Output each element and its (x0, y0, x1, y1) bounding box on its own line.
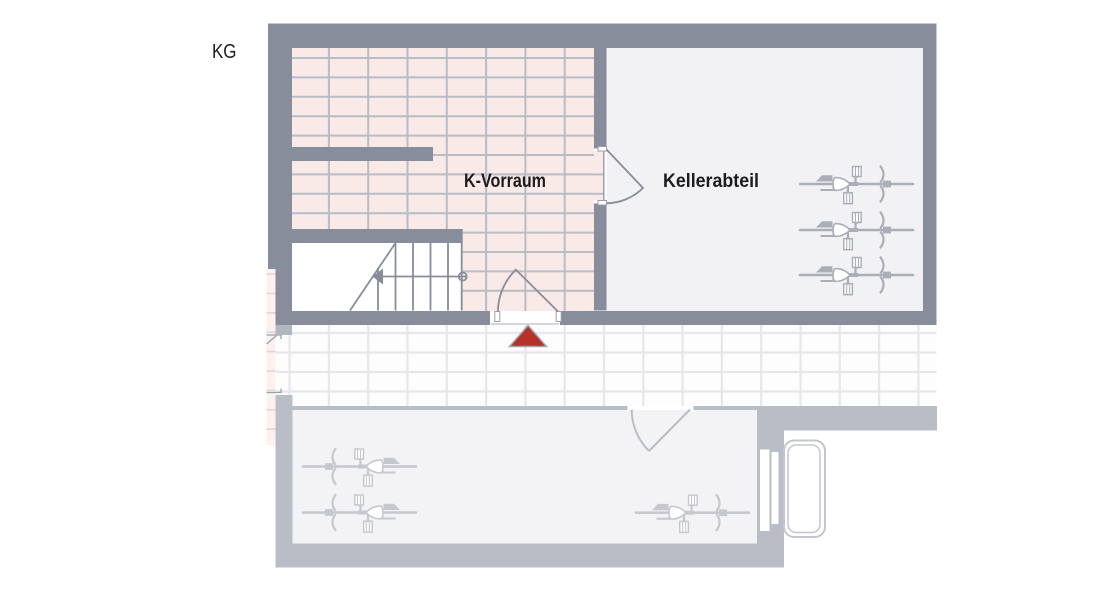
svg-text:KG: KG (212, 41, 237, 63)
svg-text:K-Vorraum: K-Vorraum (464, 171, 546, 192)
svg-text:Kellerabteil: Kellerabteil (663, 171, 759, 192)
